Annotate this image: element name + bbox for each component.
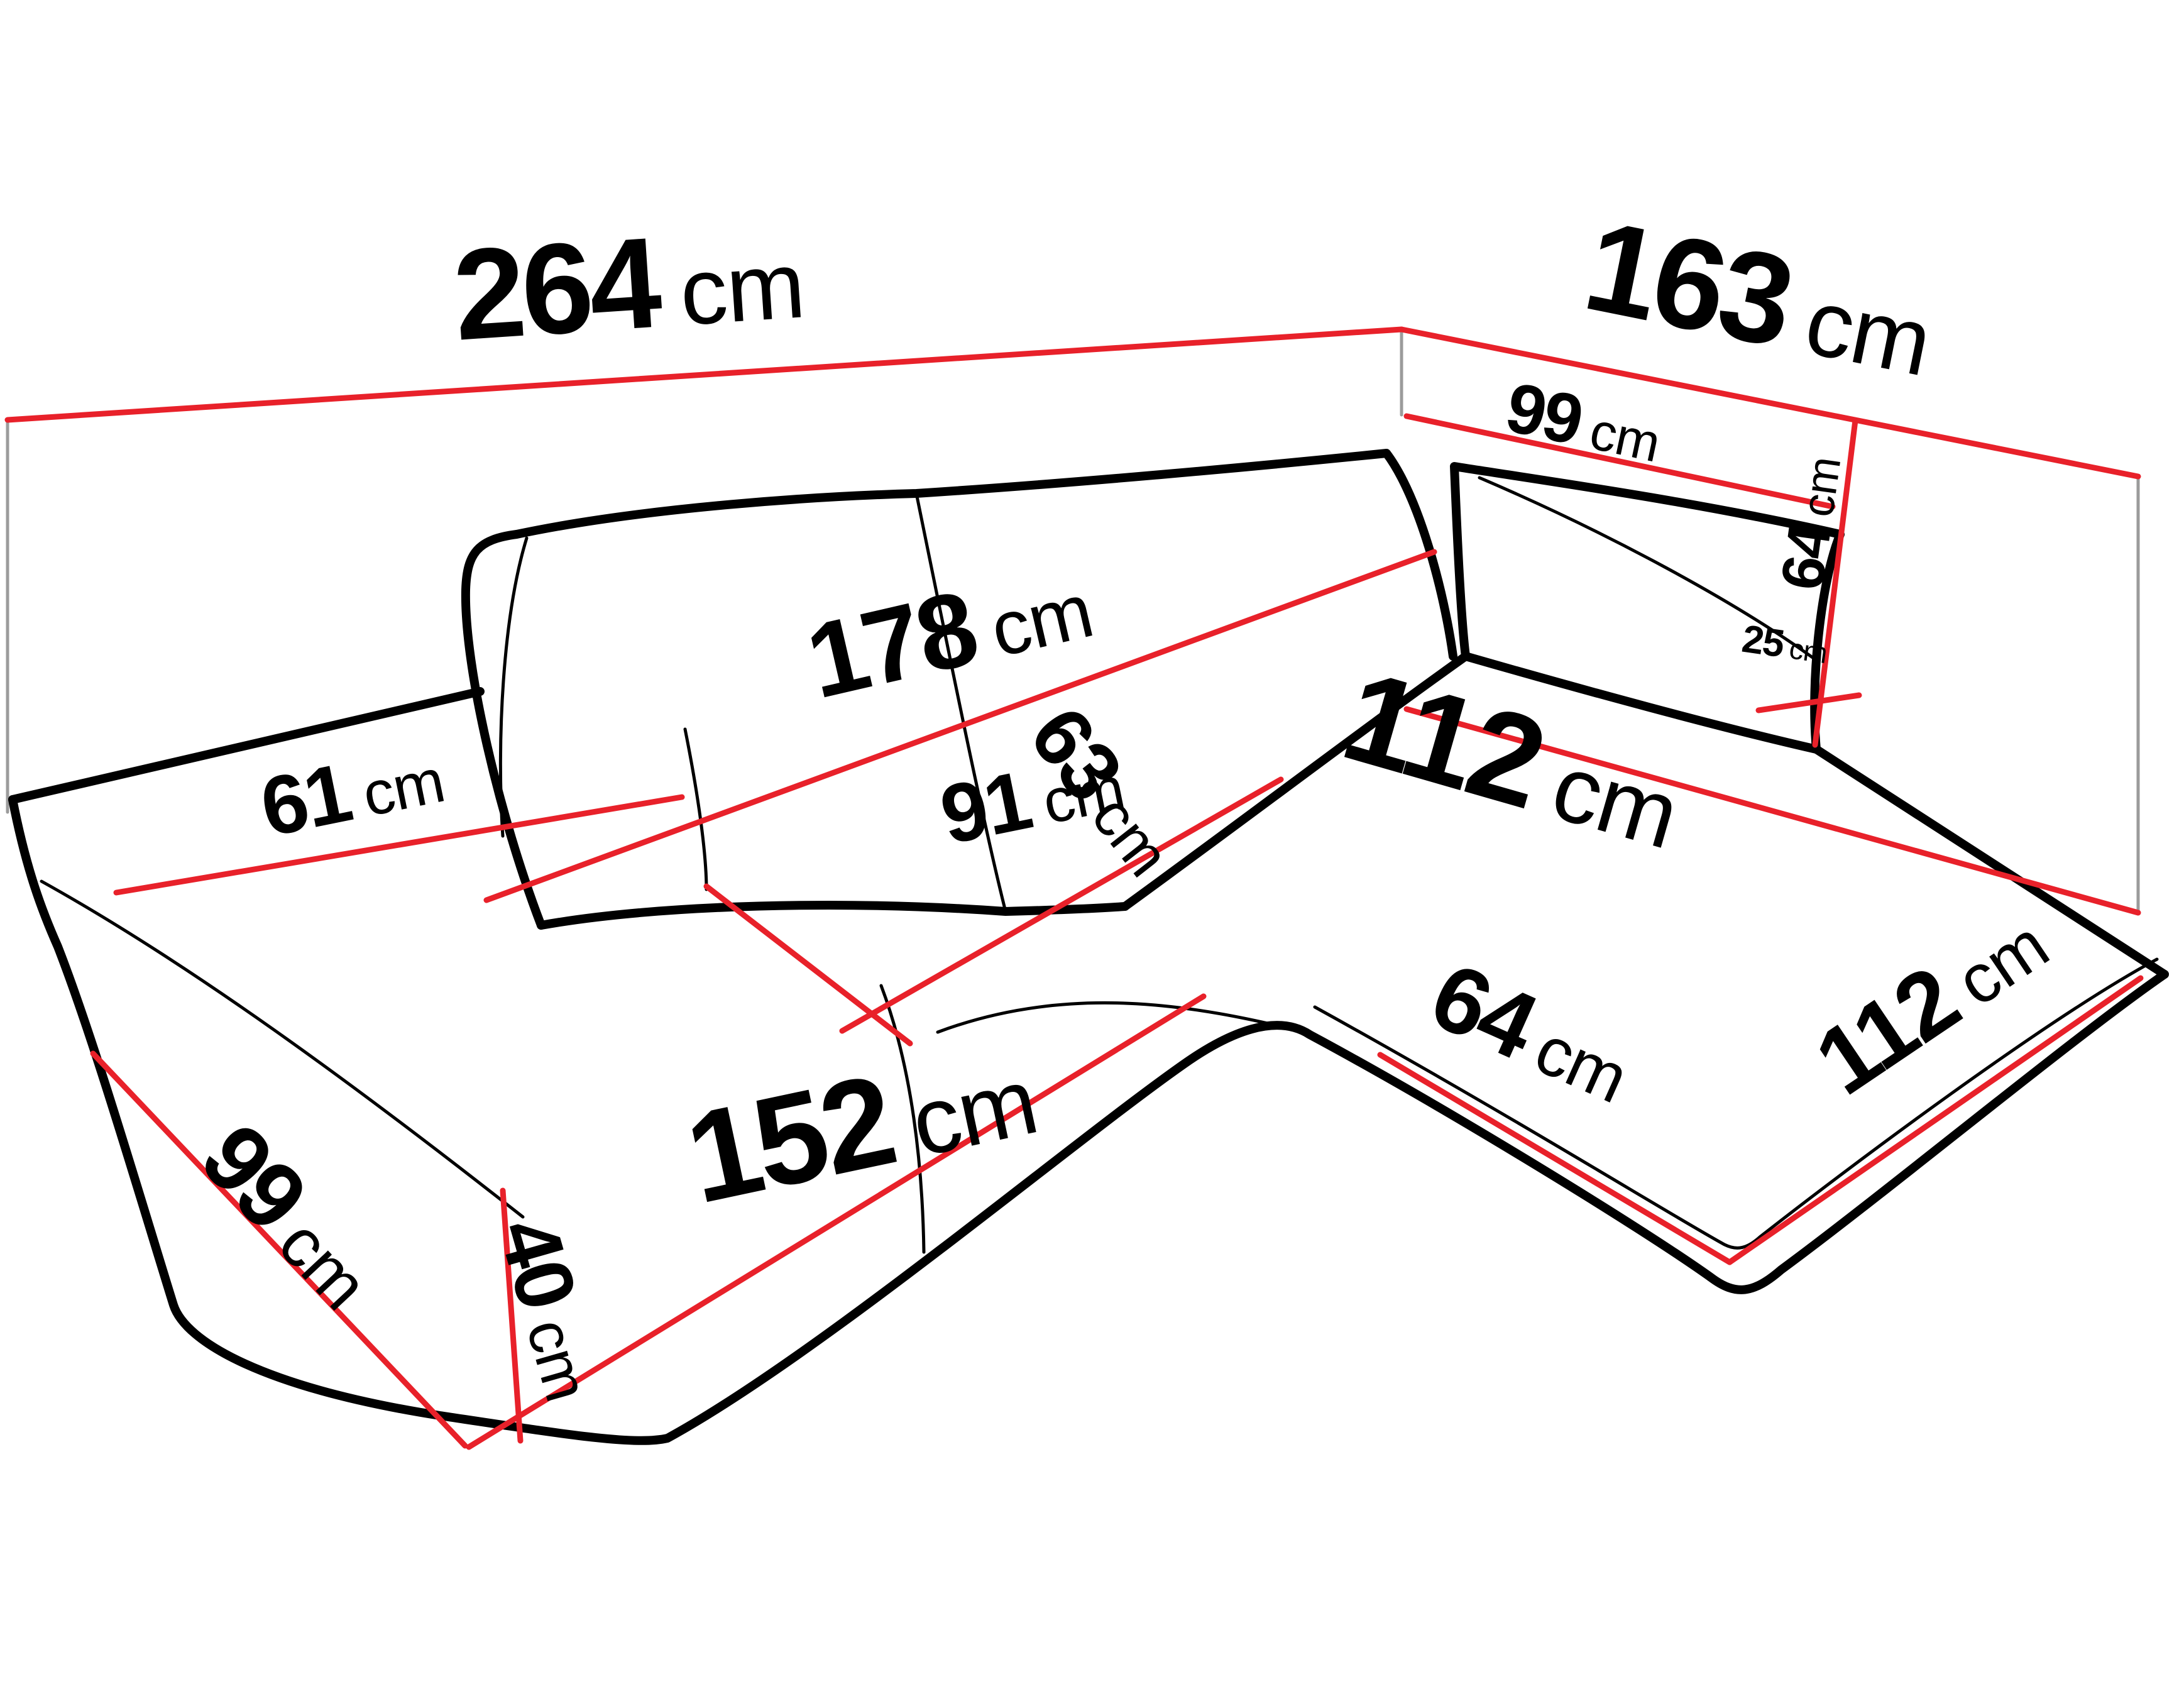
backrest-bottom-edge xyxy=(541,905,1125,925)
dim-unit: cm xyxy=(1792,454,1850,520)
dim-unit: cm xyxy=(677,231,808,345)
sofa-dimension-diagram: 264cm 163cm 99cm 64cm 25cm 178cm 112cm 6… xyxy=(0,0,2184,1706)
dim-value: 91 xyxy=(933,754,1037,862)
dim-unit: cm xyxy=(1787,632,1830,669)
dim-value: 64 xyxy=(1769,522,1844,594)
dim-value: 25 xyxy=(1740,617,1786,666)
dim-value: 61 xyxy=(253,746,357,854)
sofa-outline-thin xyxy=(41,478,2157,1252)
dimline-armrest-top-width xyxy=(1759,695,1859,710)
dim-overall-width: 264cm xyxy=(450,208,808,360)
dim-value: 264 xyxy=(449,211,662,368)
dim-value: 99 xyxy=(1500,368,1588,460)
sofa-silhouette xyxy=(13,800,2165,1441)
seat-cushion-edge xyxy=(685,729,706,889)
backrest-inner-curve xyxy=(500,538,527,836)
